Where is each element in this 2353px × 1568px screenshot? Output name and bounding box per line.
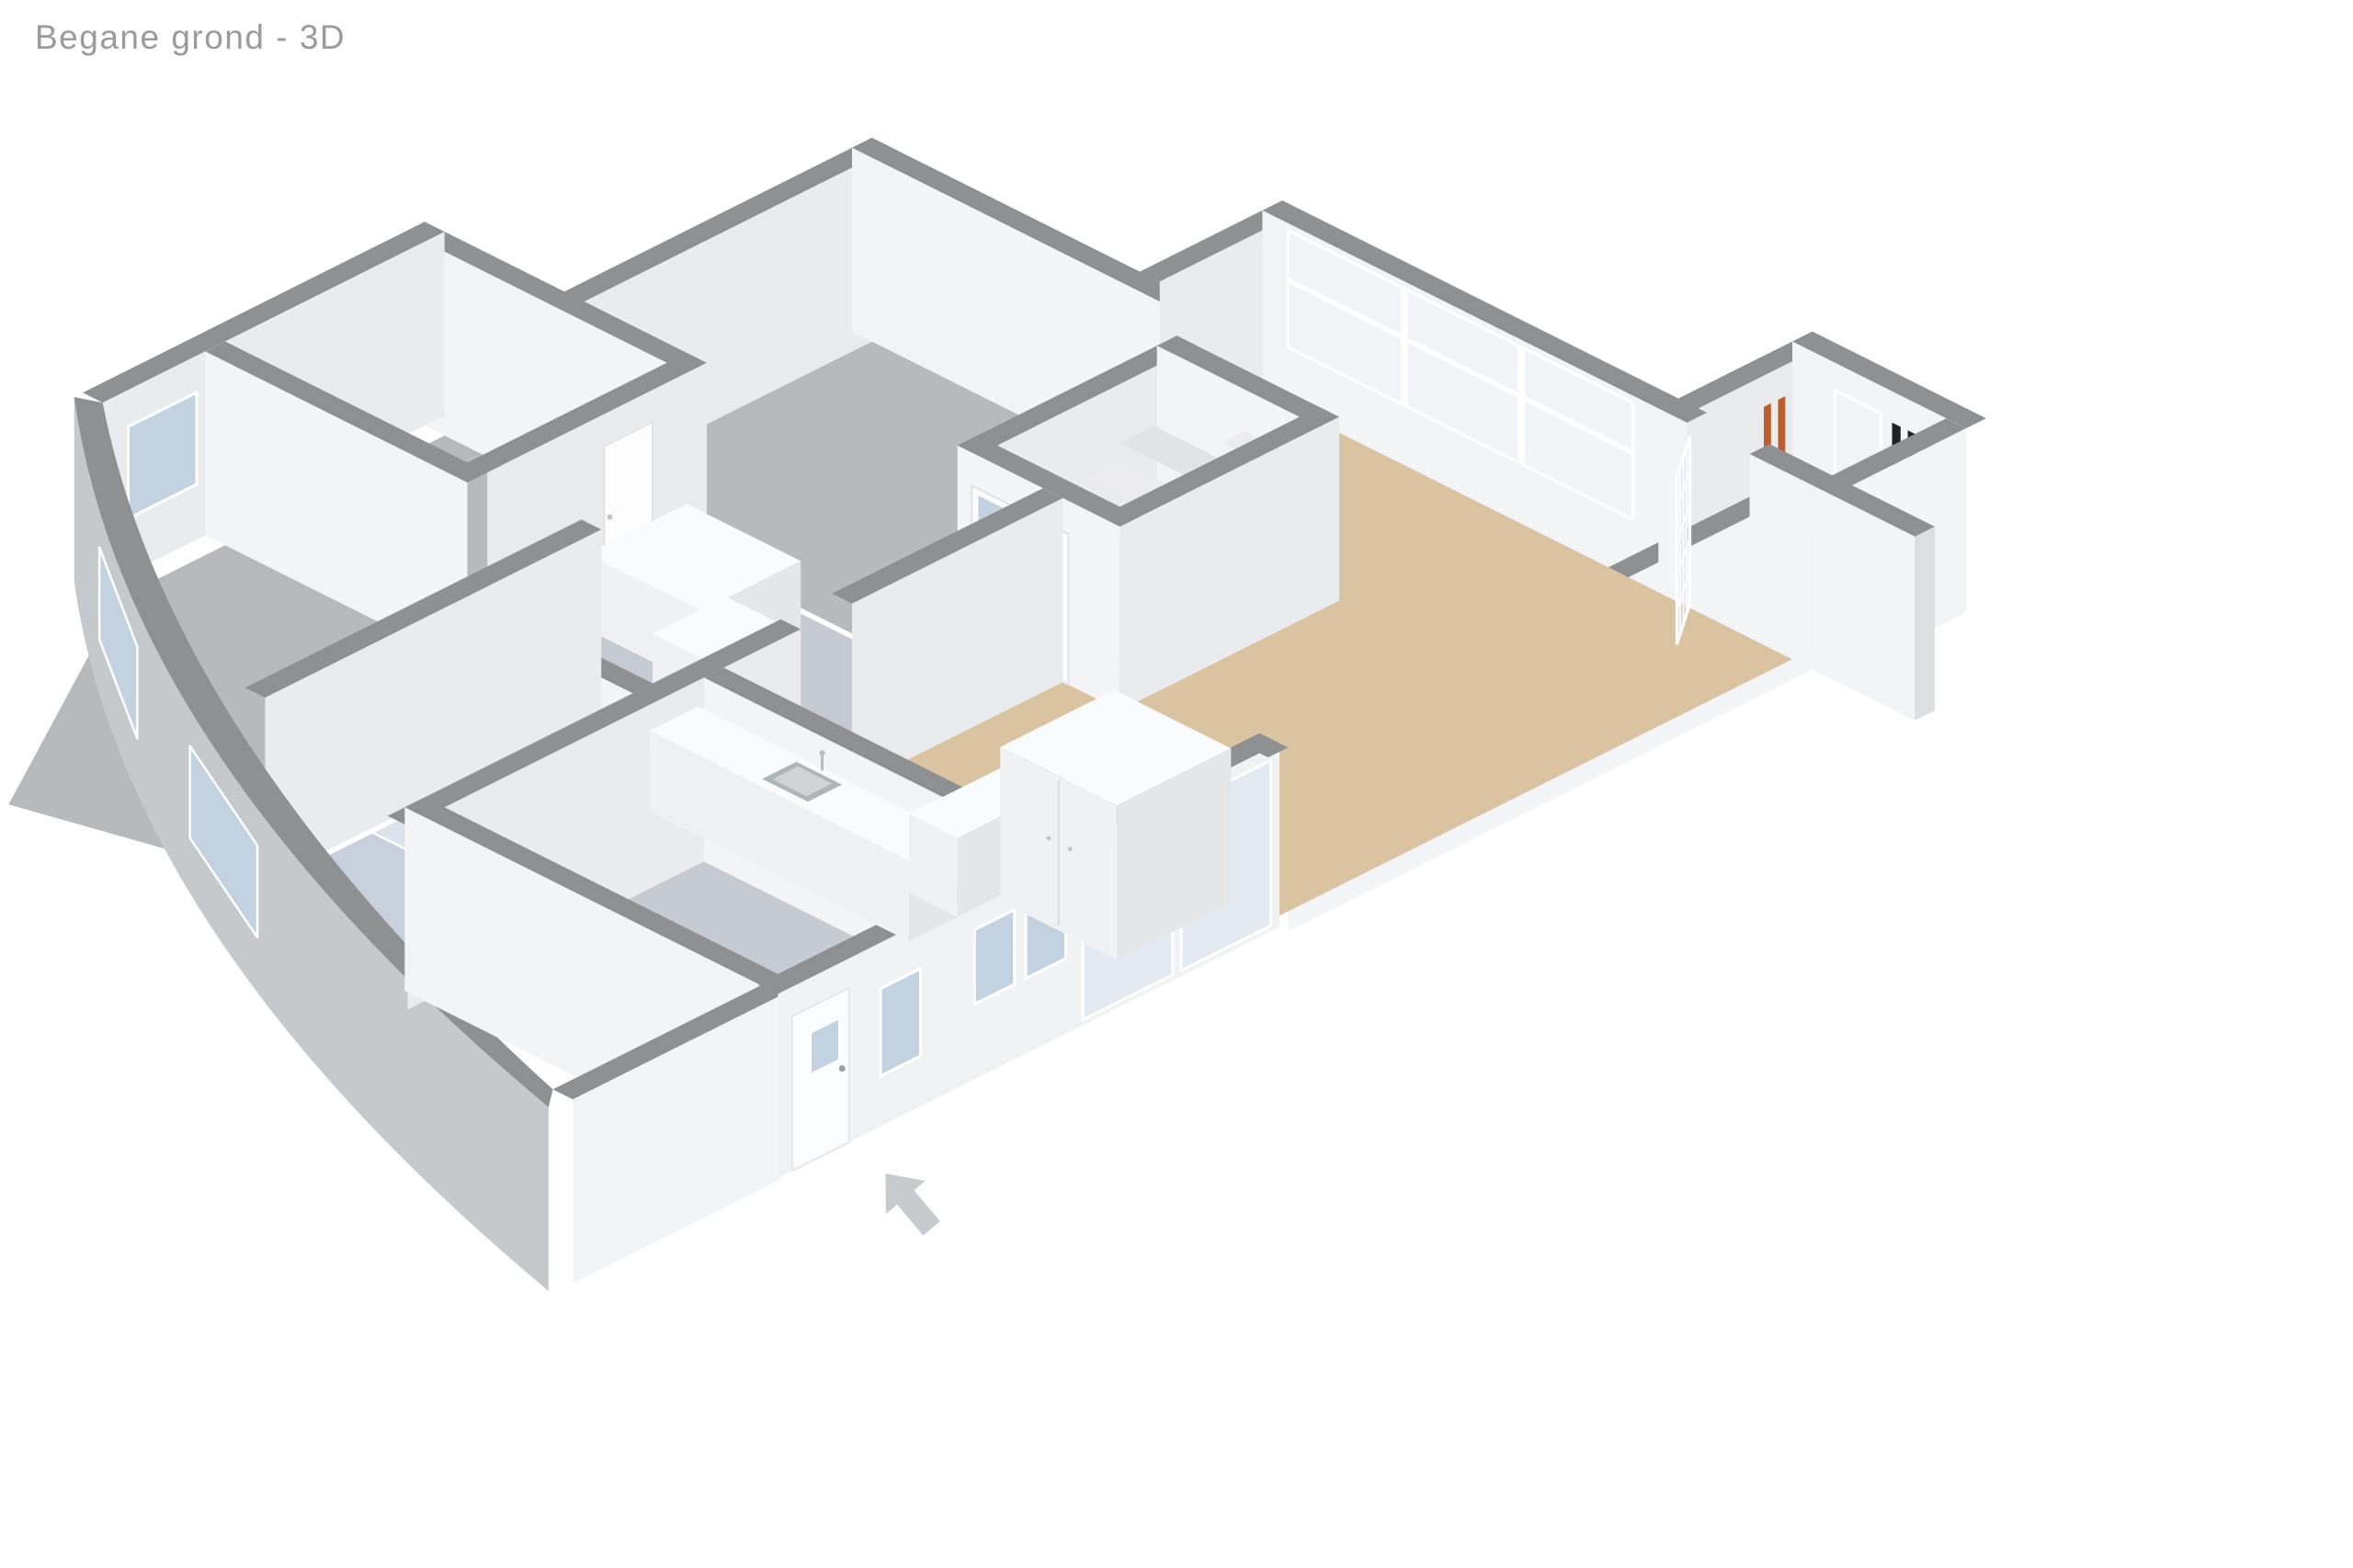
window-mullion <box>1401 287 1408 407</box>
cabinet-handle <box>1068 846 1073 851</box>
door-handle <box>608 515 613 520</box>
east-stub-cap <box>1915 527 1935 721</box>
door-handle <box>839 1065 846 1072</box>
floorplan-page: Begane grond - 3D <box>0 0 2353 1568</box>
window-mullion <box>1518 346 1525 466</box>
entrance-arrow-icon <box>866 1157 951 1245</box>
floorplan-3d-render <box>0 0 2353 1568</box>
cabinet-handle <box>1046 836 1051 841</box>
front-door <box>792 988 849 1171</box>
entry-south-wall <box>1750 454 1813 669</box>
front-door-sidelight <box>881 969 920 1076</box>
faucet-icon <box>820 750 825 756</box>
